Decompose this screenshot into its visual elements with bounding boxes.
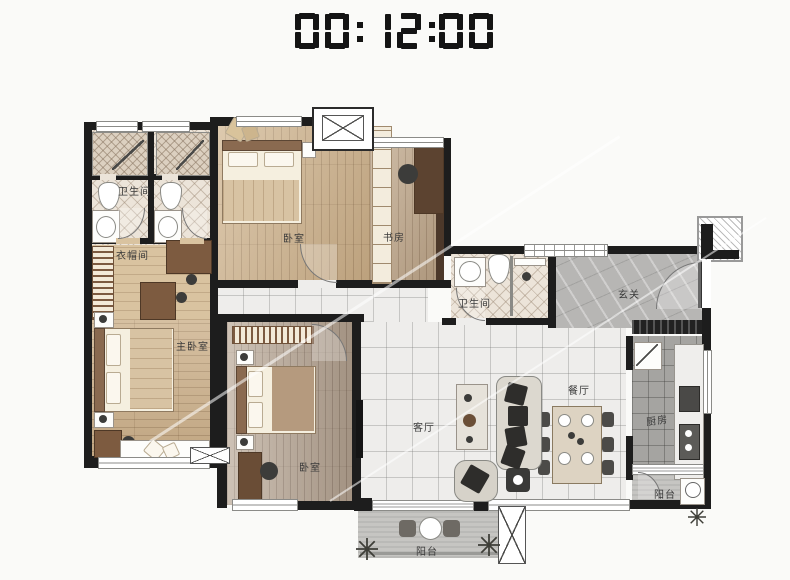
pillow — [248, 402, 263, 428]
pillow — [264, 152, 294, 167]
wall — [548, 252, 556, 328]
room-label-balcony-right: 阳台 — [654, 486, 676, 501]
stool — [186, 274, 197, 285]
shower-door — [176, 140, 204, 170]
bed-headboard — [236, 366, 247, 434]
dining-chair — [602, 437, 614, 452]
bed-headboard — [94, 328, 105, 412]
bed-headboard — [222, 140, 302, 151]
pillow — [106, 334, 121, 366]
pillow — [248, 371, 263, 397]
blanket — [272, 367, 314, 431]
wall — [626, 336, 633, 370]
desk — [238, 452, 262, 502]
wall — [217, 314, 227, 508]
plant-icon — [478, 534, 500, 556]
sink-basin — [685, 444, 692, 451]
dining-chair — [602, 412, 614, 427]
dresser — [166, 240, 212, 274]
table-decor — [463, 414, 476, 427]
room-label-living: 客厅 — [413, 419, 435, 434]
shoe-cabinet — [632, 320, 702, 334]
room-label-bathroom-1: 卫生间 — [118, 183, 151, 198]
table-decor — [466, 436, 473, 443]
window — [372, 137, 444, 148]
lamp — [240, 353, 248, 361]
tv — [356, 400, 363, 458]
hallway-2[interactable] — [373, 282, 428, 324]
door-opening — [162, 174, 178, 180]
room-label-bathroom-2: 卫生间 — [458, 295, 491, 310]
balcony-table — [419, 517, 442, 540]
plant-icon — [356, 538, 378, 560]
wall — [296, 501, 358, 510]
plate — [581, 452, 594, 465]
shower-head — [522, 272, 531, 281]
pillow — [228, 152, 258, 167]
stove — [679, 386, 700, 412]
plate — [558, 452, 571, 465]
desk — [414, 142, 444, 214]
wall — [217, 314, 364, 322]
room-label-bedroom-2: 卧室 — [283, 230, 305, 245]
shower-door — [112, 140, 144, 170]
floor-plan-screen: 卫生间 衣帽间 主卧室 卧室 书房 卫生间 玄关 客厅 餐厅 厨房 卧室 阳台 … — [0, 0, 790, 580]
dresser — [140, 282, 176, 320]
balcony-chair — [443, 520, 460, 537]
plate — [581, 414, 594, 427]
fridge-decor — [636, 344, 658, 366]
bookshelf — [372, 126, 392, 284]
room-label-kitchen: 厨房 — [645, 411, 669, 429]
room-label-dining: 餐厅 — [568, 382, 590, 397]
sink — [96, 216, 116, 238]
clothes-rack — [92, 246, 114, 320]
wall — [354, 498, 372, 511]
stool — [176, 292, 187, 303]
room-label-foyer: 玄关 — [618, 286, 640, 301]
blanket — [223, 180, 299, 221]
bowl — [568, 432, 575, 439]
door-opening — [180, 238, 204, 244]
lamp — [240, 438, 248, 446]
desk — [94, 430, 122, 458]
door-opening — [100, 174, 116, 180]
stool-decor — [513, 475, 523, 485]
shower-divider — [510, 256, 513, 316]
washing-machine-door — [685, 482, 701, 498]
window — [142, 121, 190, 132]
sliding-door — [372, 500, 474, 511]
ac-unit-box — [498, 506, 526, 564]
room-label-master-bedroom: 主卧室 — [176, 338, 209, 353]
bowl — [577, 438, 584, 445]
ac-unit-box — [190, 447, 230, 464]
shelf — [436, 214, 444, 280]
wardrobe — [232, 326, 314, 344]
room-label-cloakroom: 衣帽间 — [116, 247, 149, 262]
window — [232, 499, 298, 511]
countdown-clock — [295, 12, 495, 50]
blanket — [130, 329, 172, 409]
dining-chair — [602, 460, 614, 475]
sink-basin — [685, 430, 692, 437]
window — [524, 244, 608, 257]
window — [236, 116, 302, 127]
window — [96, 121, 138, 132]
lamp — [99, 315, 107, 323]
shower-glass — [514, 258, 546, 266]
pillow — [106, 372, 121, 404]
lamp — [99, 415, 107, 423]
entry-door-opening — [702, 260, 711, 308]
sofa-cushion — [508, 406, 528, 426]
room-label-study: 书房 — [383, 229, 405, 244]
sink — [158, 216, 178, 238]
desk-chair — [260, 462, 278, 480]
room-label-balcony-bottom: 阳台 — [416, 543, 438, 558]
plate — [558, 414, 571, 427]
wall — [701, 250, 739, 259]
plant-icon — [688, 508, 706, 526]
desk-chair — [398, 164, 418, 184]
room-label-bedroom-3: 卧室 — [299, 459, 321, 474]
window — [703, 350, 712, 414]
balcony-chair — [399, 520, 416, 537]
sink — [459, 261, 481, 282]
table-decor — [464, 394, 472, 402]
ac-unit-box — [322, 115, 364, 141]
